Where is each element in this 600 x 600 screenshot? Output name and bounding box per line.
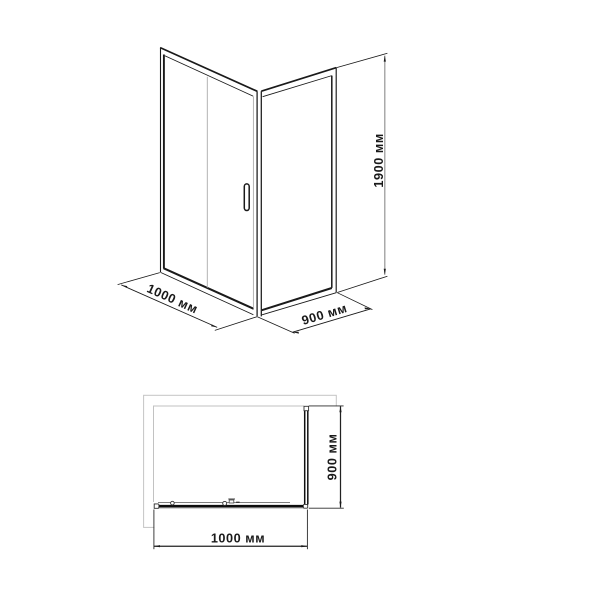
svg-text:1000 мм: 1000 мм xyxy=(211,531,265,545)
svg-text:1900 мм: 1900 мм xyxy=(372,133,386,187)
svg-text:900 мм: 900 мм xyxy=(326,434,340,481)
